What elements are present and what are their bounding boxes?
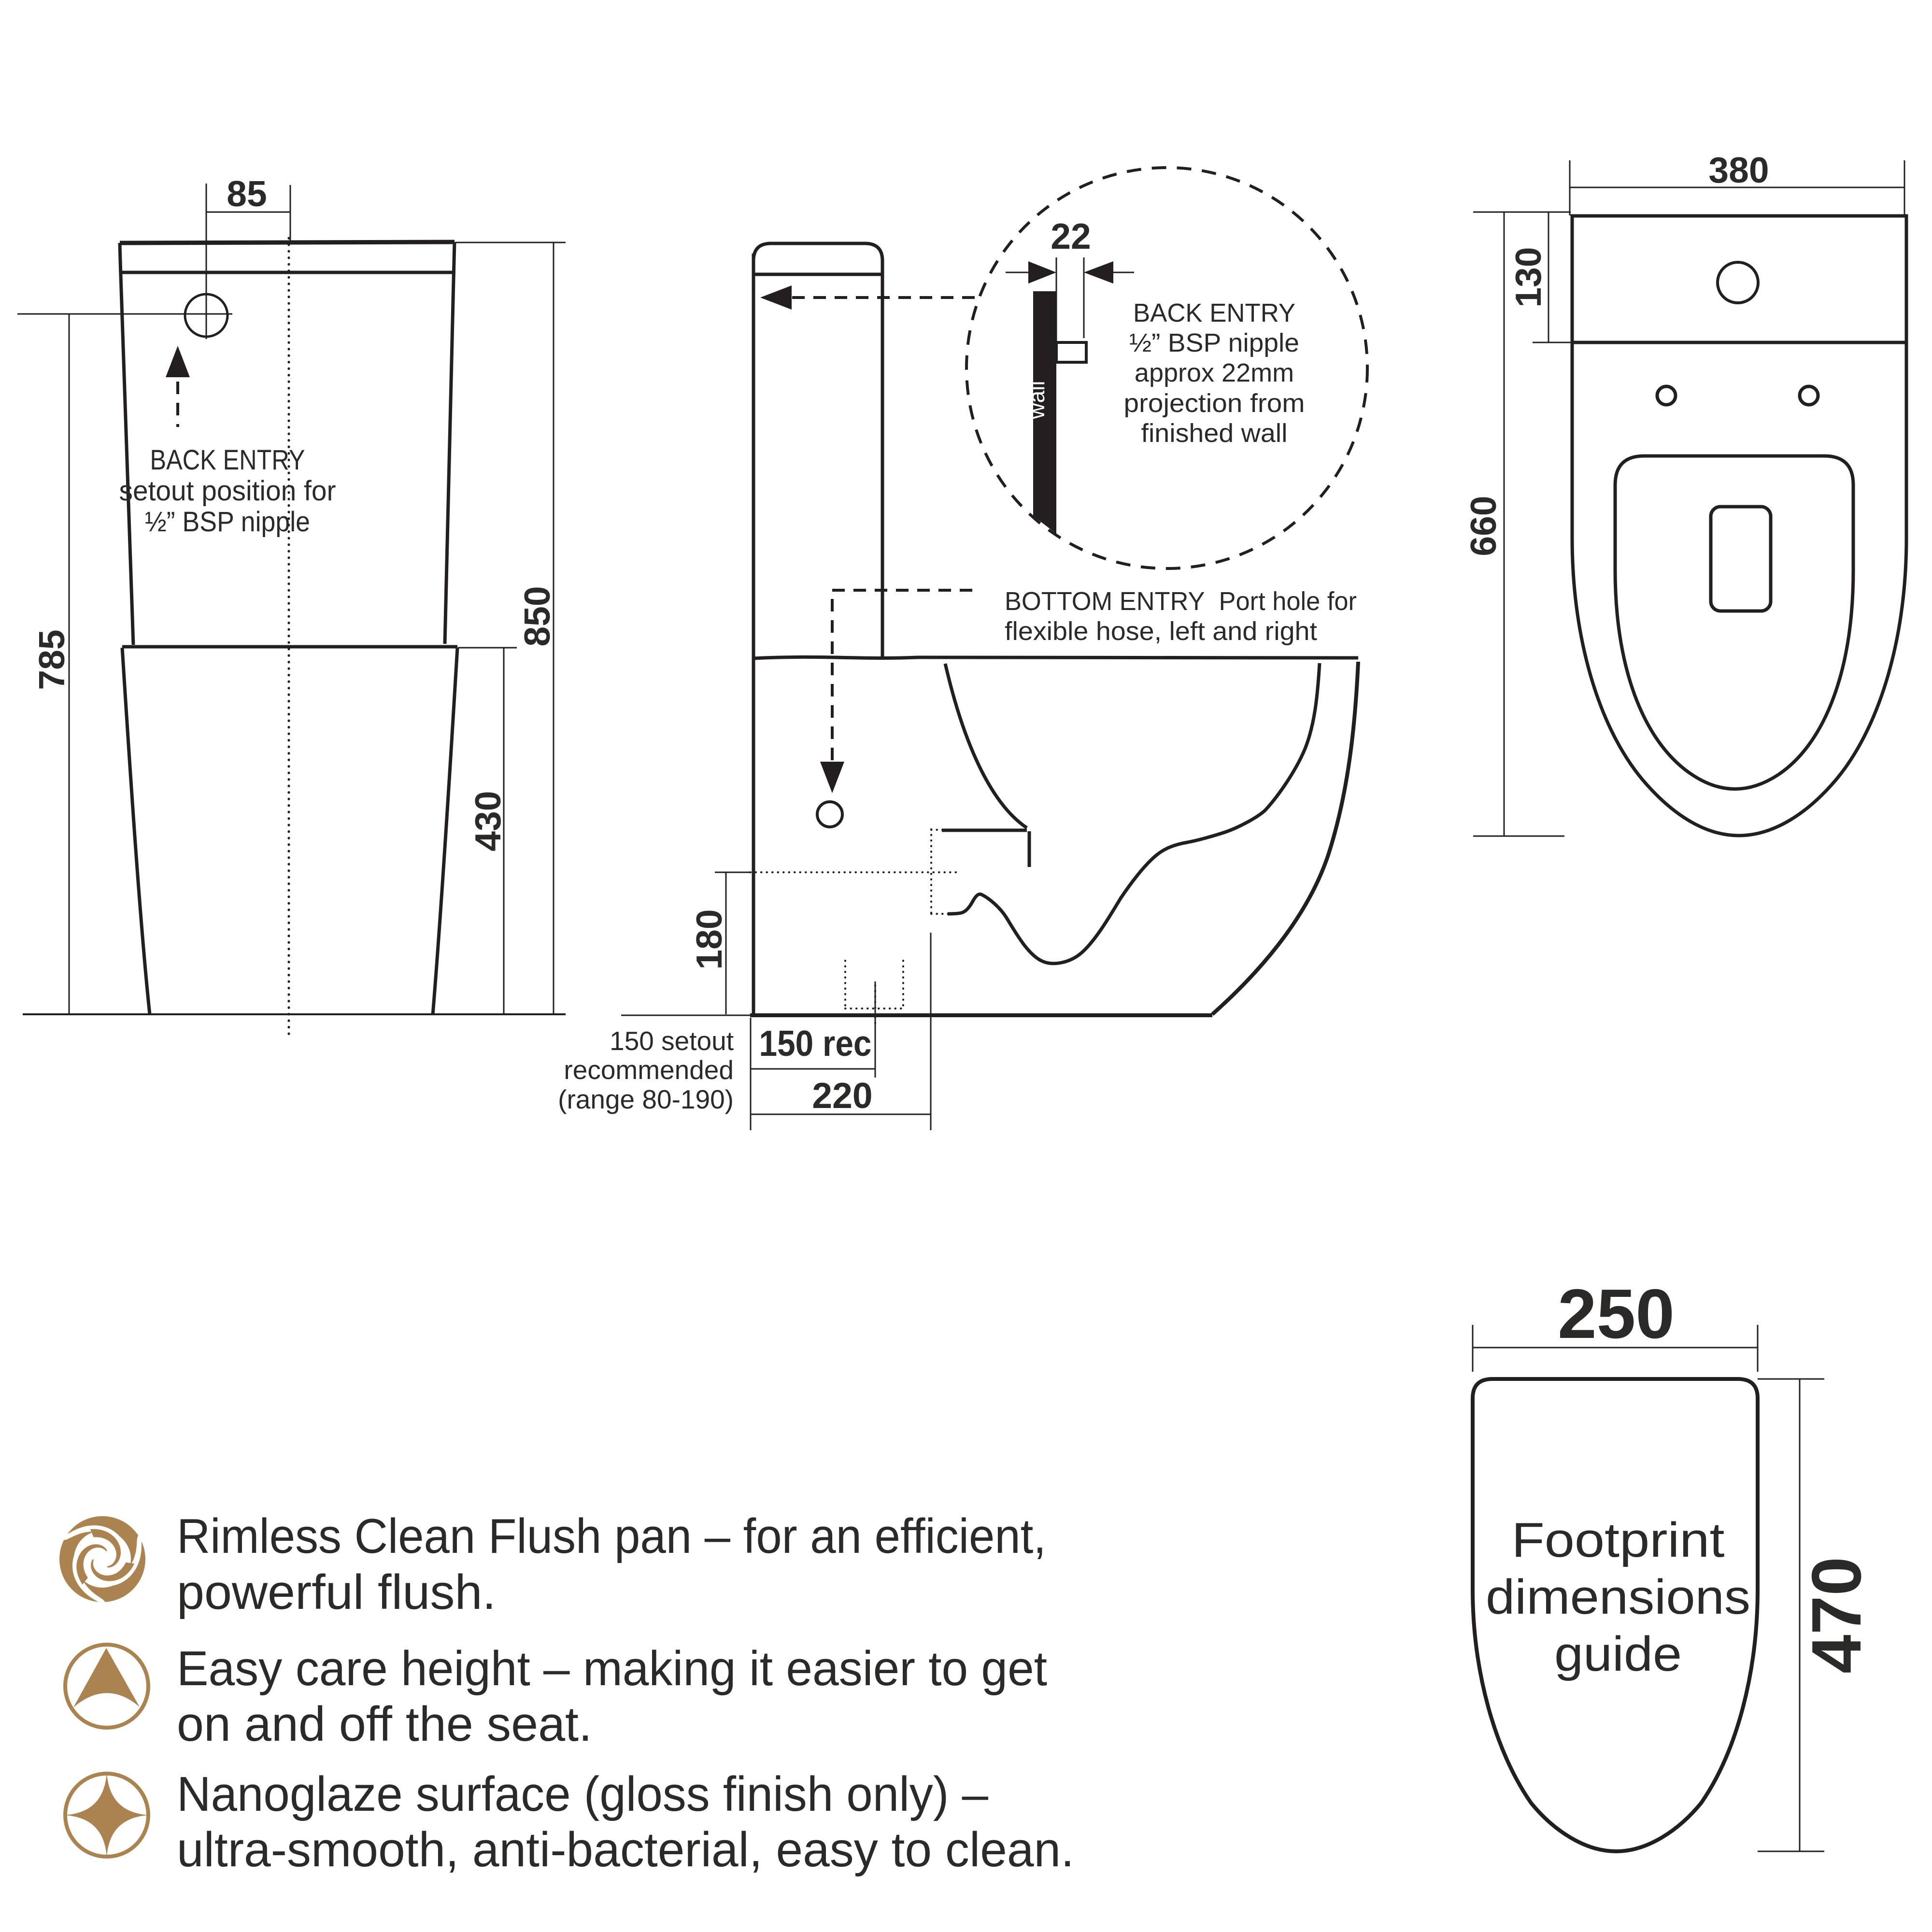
svg-text:430: 430 [468,791,508,851]
svg-text:785: 785 [31,629,72,690]
svg-text:Rimless Clean Flush pan – for: Rimless Clean Flush pan – for an efficie… [177,1509,1046,1563]
svg-text:220: 220 [812,1075,872,1116]
svg-text:projection from: projection from [1124,389,1305,418]
svg-text:½” BSP nipple: ½” BSP nipple [1129,328,1299,357]
svg-text:380: 380 [1708,150,1769,190]
svg-text:Footprint: Footprint [1512,1513,1725,1567]
svg-text:150 rec: 150 rec [759,1023,872,1064]
svg-text:guide: guide [1554,1627,1682,1681]
svg-text:approx 22mm: approx 22mm [1135,358,1294,387]
svg-text:85: 85 [227,173,267,214]
svg-text:470: 470 [1797,1557,1875,1674]
svg-text:on and off the seat.: on and off the seat. [177,1697,592,1751]
svg-text:finished wall: finished wall [1141,419,1288,448]
svg-text:BACK ENTRY: BACK ENTRY [1133,298,1295,327]
svg-text:dimensions: dimensions [1486,1570,1750,1624]
svg-text:22: 22 [1051,216,1091,256]
svg-text:150 setout: 150 setout [610,1026,734,1056]
svg-text:setout position for: setout position for [119,475,336,507]
svg-text:660: 660 [1463,496,1504,556]
svg-text:wall: wall [1024,381,1049,419]
svg-text:(range 80-190): (range 80-190) [558,1084,734,1114]
svg-text:BOTTOM ENTRY Port hole for: BOTTOM ENTRY Port hole for [1005,587,1357,616]
svg-text:flexible hose, left and right: flexible hose, left and right [1005,617,1317,646]
svg-text:Easy care height – making it e: Easy care height – making it easier to g… [177,1642,1047,1696]
svg-text:130: 130 [1508,247,1548,307]
svg-text:250: 250 [1558,1275,1675,1353]
svg-text:recommended: recommended [564,1055,734,1085]
svg-text:Nanoglaze surface (gloss finis: Nanoglaze surface (gloss finish only) – [177,1767,989,1821]
svg-text:ultra-smooth, anti-bacterial,: ultra-smooth, anti-bacterial, easy to cl… [177,1823,1074,1877]
svg-text:½” BSP nipple: ½” BSP nipple [145,506,310,538]
svg-text:850: 850 [517,586,557,646]
svg-text:BACK ENTRY: BACK ENTRY [150,444,305,476]
svg-text:powerful flush.: powerful flush. [177,1565,496,1619]
svg-text:180: 180 [689,909,729,969]
